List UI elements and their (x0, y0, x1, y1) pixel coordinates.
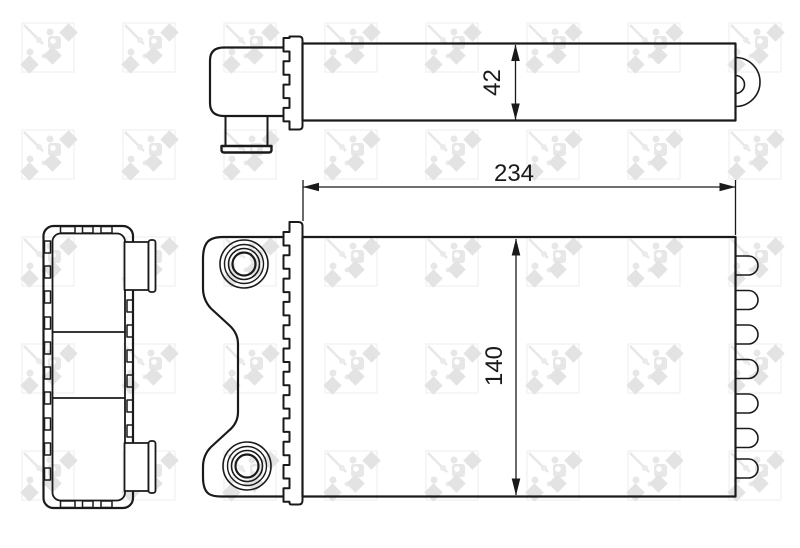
nrf-watermark (20, 130, 77, 181)
nrf-watermark (424, 23, 481, 74)
dimension-depth: 42 (479, 45, 520, 121)
arrowhead-up (512, 239, 521, 256)
nrf-watermark (626, 23, 683, 74)
nrf-watermark (121, 130, 178, 181)
dimension-height-label: 140 (481, 346, 508, 386)
nrf-watermark (525, 344, 582, 395)
nrf-watermark (20, 237, 77, 288)
nrf-watermark (20, 23, 77, 74)
top-view-end-boss-arc-inner (736, 76, 745, 94)
top-view-core (303, 44, 736, 121)
nrf-watermark (525, 23, 582, 74)
nrf-watermark (424, 344, 481, 395)
side-view-pipe-top (125, 240, 156, 292)
nrf-watermark (20, 451, 77, 502)
top-view-header-plate (284, 37, 303, 130)
arrowhead-up (511, 45, 520, 62)
nrf-watermark (626, 237, 683, 288)
front-view-pipe-boss-top (220, 240, 268, 288)
nrf-watermark (424, 451, 481, 502)
nrf-watermark (424, 237, 481, 288)
nrf-watermark (626, 130, 683, 181)
side-view-bottom-notches (61, 501, 113, 508)
arrowhead-right (720, 183, 736, 191)
nrf-watermark (626, 344, 683, 395)
nrf-watermark (20, 344, 77, 395)
nrf-watermark (323, 451, 380, 502)
top-view-pipe-stub (226, 116, 268, 146)
arrowhead-down (511, 104, 520, 121)
nrf-watermark (323, 130, 380, 181)
top-view-pipe-flange (222, 146, 272, 153)
nrf-watermark (525, 451, 582, 502)
nrf-watermark (424, 130, 481, 181)
arrowhead-down (512, 479, 521, 496)
side-view-top-notches (61, 227, 113, 234)
technical-drawing-page: 42 234 (0, 0, 800, 548)
technical-drawing-canvas: 42 234 (0, 0, 800, 548)
nrf-watermark (727, 130, 784, 181)
nrf-watermark (323, 344, 380, 395)
nrf-watermark (222, 130, 279, 181)
nrf-watermark (626, 451, 683, 502)
nrf-watermark (121, 23, 178, 74)
front-view-tube-ends (736, 256, 759, 478)
dimension-height: 140 (481, 239, 520, 496)
dimension-width: 234 (303, 160, 736, 235)
nrf-watermark (323, 237, 380, 288)
dimension-width-label: 234 (494, 160, 534, 187)
dimension-depth-label: 42 (479, 69, 506, 96)
nrf-watermark (323, 23, 380, 74)
nrf-watermark (222, 344, 279, 395)
front-view-header-plate (284, 222, 303, 505)
side-view-pipe-bottom (125, 441, 156, 493)
arrowhead-left (303, 183, 319, 191)
nrf-watermark (525, 237, 582, 288)
